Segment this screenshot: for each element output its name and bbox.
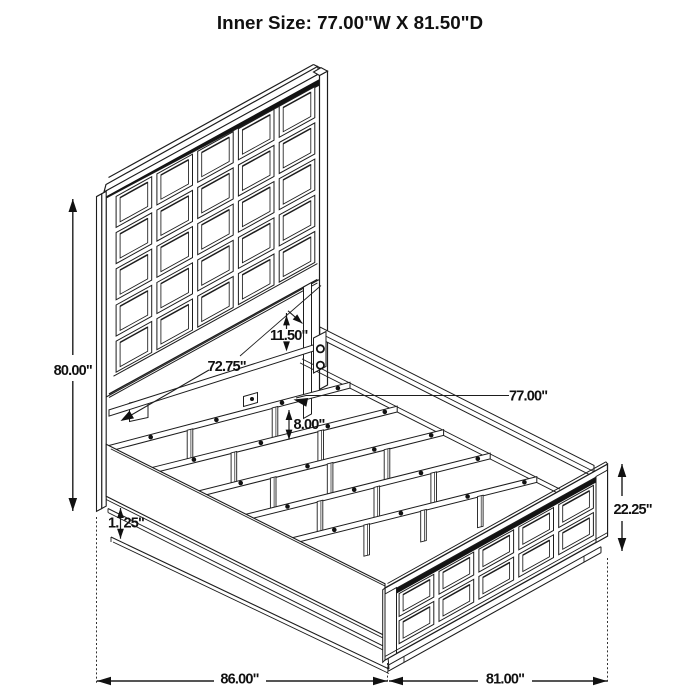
svg-text:22.25": 22.25"	[614, 502, 652, 518]
svg-text:11.50": 11.50"	[270, 328, 308, 344]
svg-text:86.00": 86.00"	[220, 672, 258, 688]
svg-text:72.75": 72.75"	[208, 359, 246, 375]
svg-text:1.: 1.	[108, 516, 119, 532]
svg-text:25": 25"	[124, 516, 145, 532]
svg-text:81.00": 81.00"	[486, 672, 524, 688]
svg-text:77.00": 77.00"	[509, 389, 547, 405]
svg-text:Inner Size: 77.00"W X 81.50"D: Inner Size: 77.00"W X 81.50"D	[217, 12, 483, 33]
svg-text:80.00": 80.00"	[54, 363, 92, 379]
svg-text:8.00": 8.00"	[294, 417, 325, 433]
